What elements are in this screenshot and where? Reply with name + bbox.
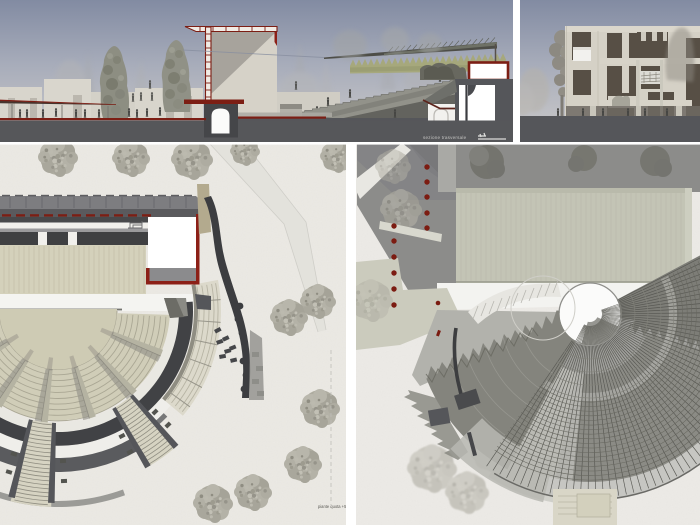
- svg-text:sezione trasversale: sezione trasversale: [423, 135, 467, 140]
